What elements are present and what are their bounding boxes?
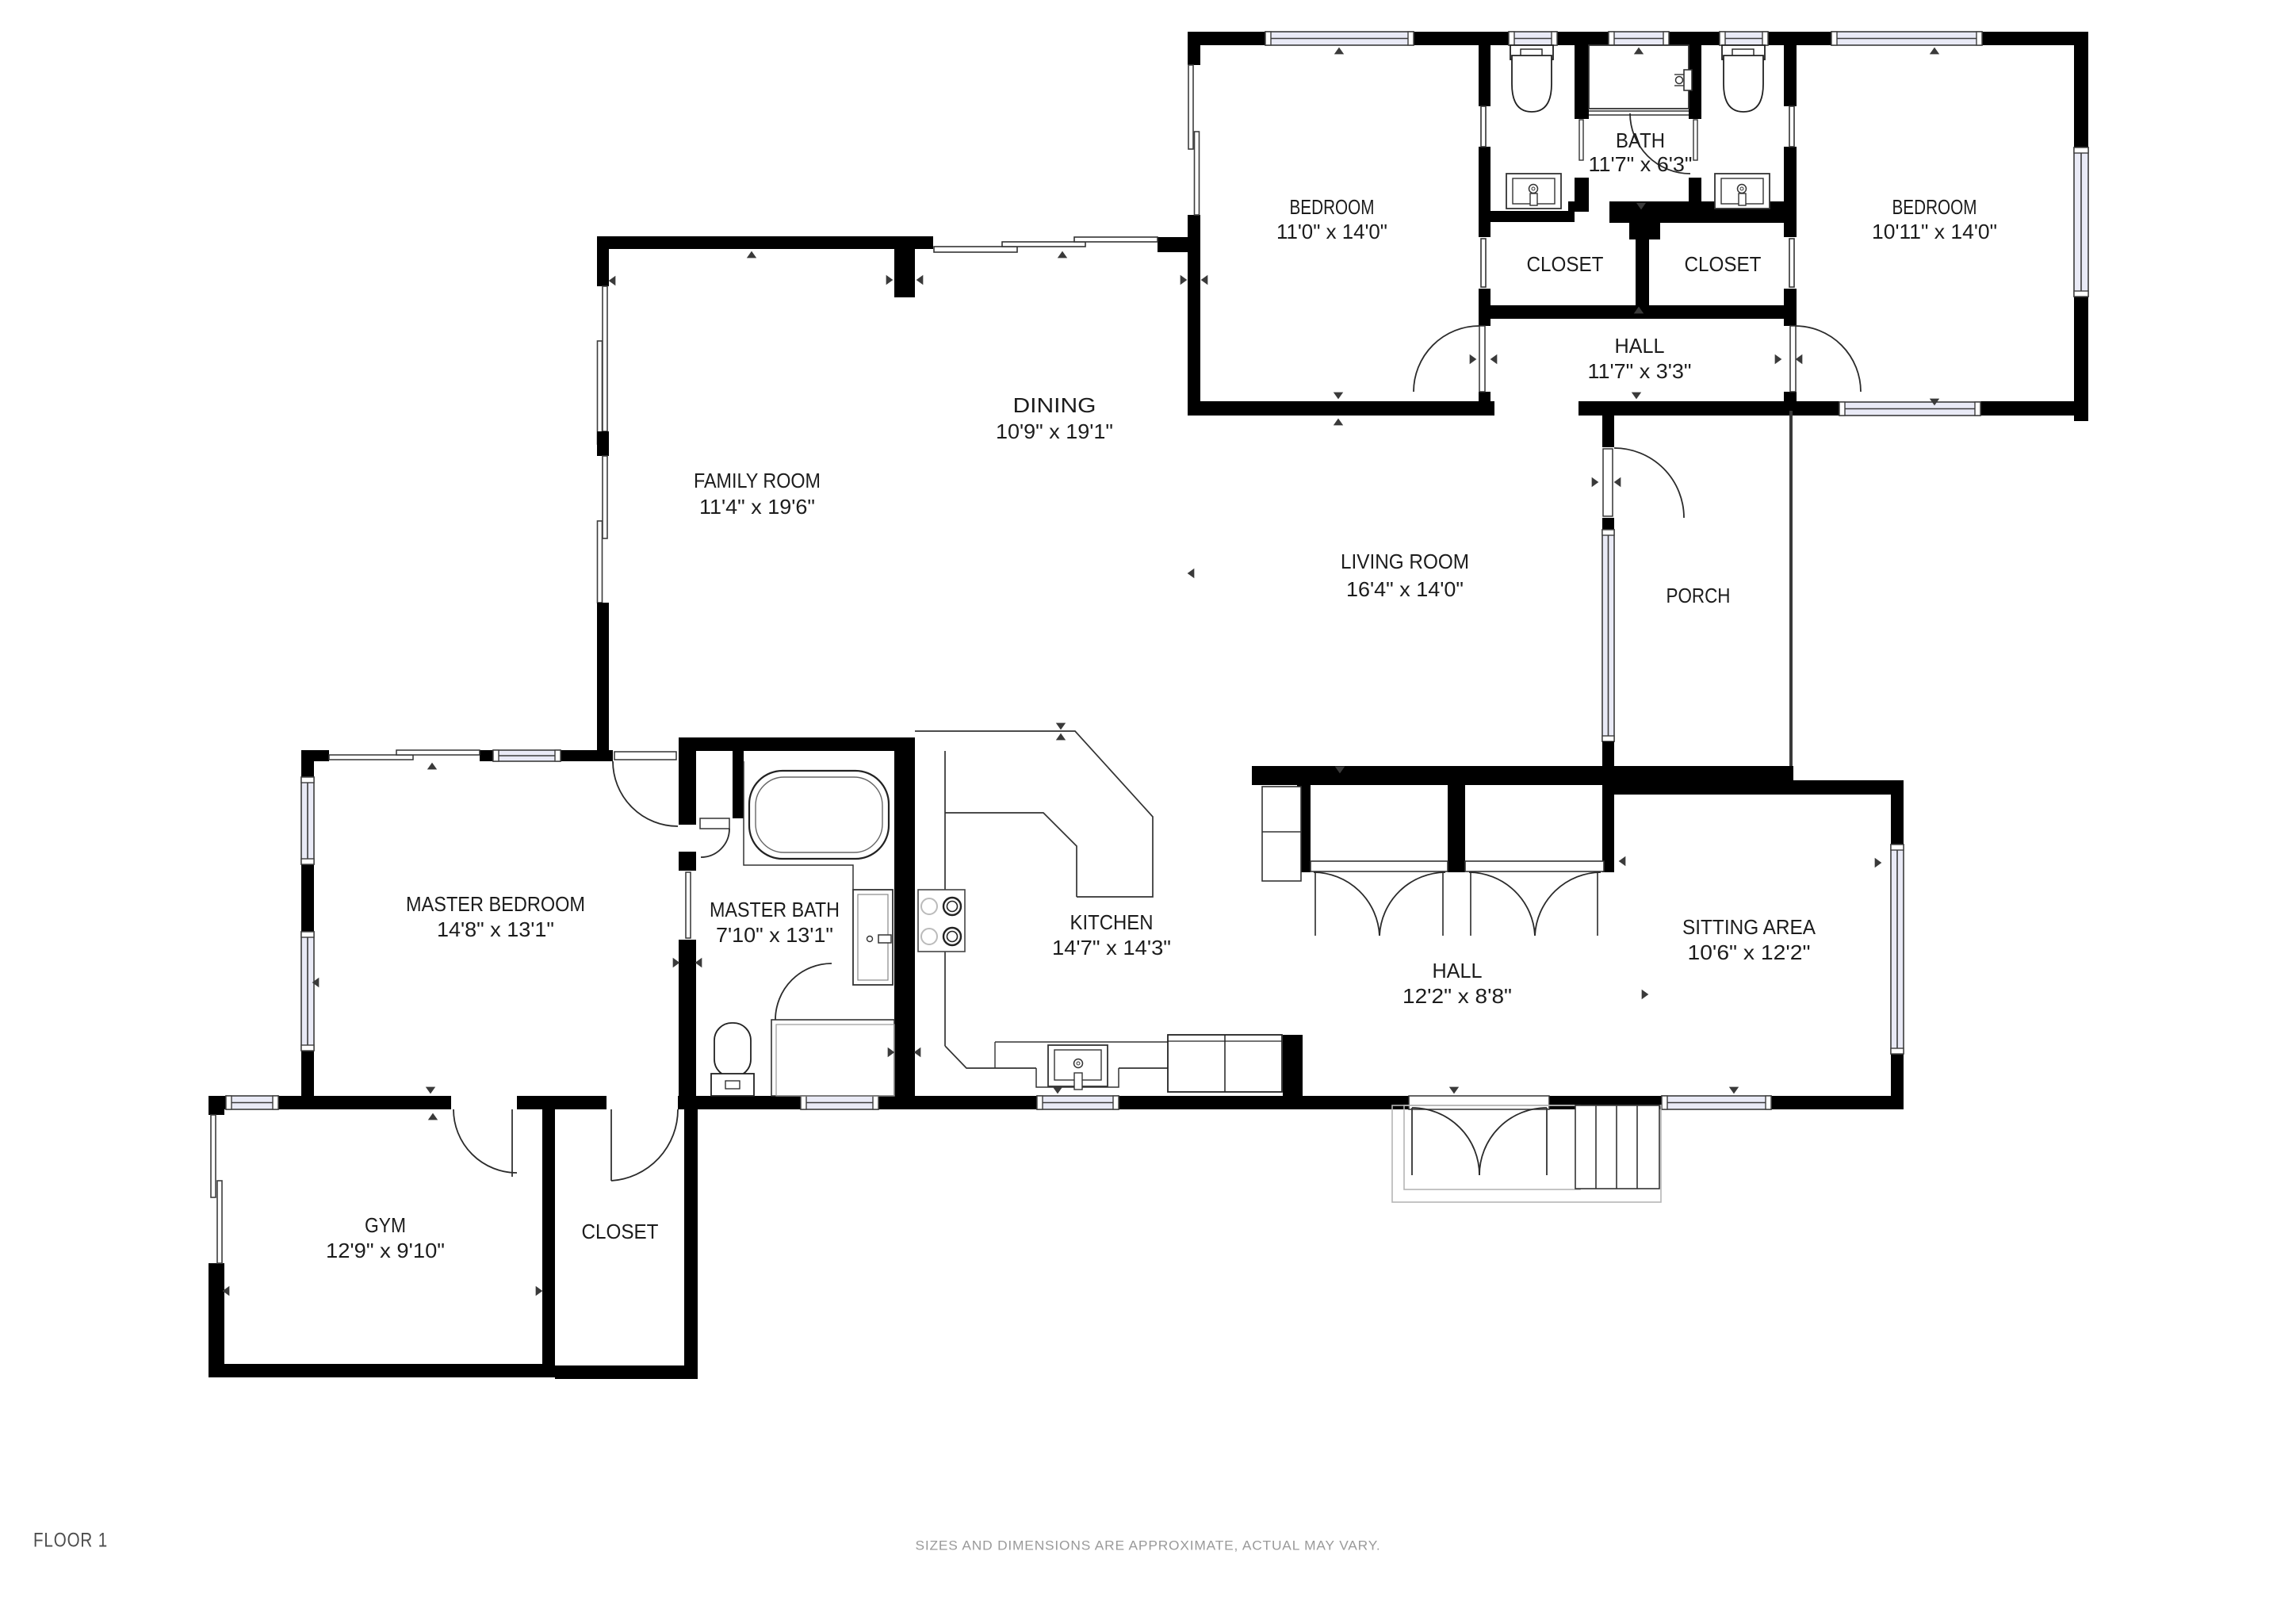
svg-text:MASTER BEDROOM: MASTER BEDROOM xyxy=(406,892,585,916)
svg-text:MASTER BATH: MASTER BATH xyxy=(710,898,840,921)
svg-text:GYM: GYM xyxy=(365,1213,406,1237)
svg-text:10'6" x 12'2": 10'6" x 12'2" xyxy=(1688,940,1811,964)
svg-text:HALL: HALL xyxy=(1615,334,1665,358)
svg-text:11'7" x 3'3": 11'7" x 3'3" xyxy=(1588,359,1692,383)
svg-text:FAMILY ROOM: FAMILY ROOM xyxy=(694,469,821,492)
svg-text:CLOSET: CLOSET xyxy=(1685,252,1762,276)
svg-text:DINING: DINING xyxy=(1013,393,1096,417)
svg-text:12'2" x 8'8": 12'2" x 8'8" xyxy=(1402,984,1512,1008)
svg-text:FLOOR 1: FLOOR 1 xyxy=(33,1530,108,1552)
svg-text:16'4" x 14'0": 16'4" x 14'0" xyxy=(1346,577,1464,601)
svg-text:PORCH: PORCH xyxy=(1667,584,1731,607)
svg-text:11'0" x 14'0": 11'0" x 14'0" xyxy=(1276,220,1387,243)
svg-text:CLOSET: CLOSET xyxy=(582,1220,659,1243)
svg-text:SIZES AND DIMENSIONS ARE APPRO: SIZES AND DIMENSIONS ARE APPROXIMATE, AC… xyxy=(916,1538,1381,1553)
svg-text:BEDROOM: BEDROOM xyxy=(1290,195,1375,219)
svg-text:14'7" x 14'3": 14'7" x 14'3" xyxy=(1052,936,1171,959)
svg-text:10'11" x 14'0": 10'11" x 14'0" xyxy=(1872,220,1997,243)
svg-text:SITTING AREA: SITTING AREA xyxy=(1682,915,1816,939)
svg-text:7'10" x 13'1": 7'10" x 13'1" xyxy=(716,923,833,947)
svg-text:KITCHEN: KITCHEN xyxy=(1070,910,1154,934)
svg-text:BATH: BATH xyxy=(1616,128,1665,152)
svg-text:HALL: HALL xyxy=(1433,959,1483,982)
svg-text:10'9" x 19'1": 10'9" x 19'1" xyxy=(996,419,1113,443)
svg-text:14'8" x 13'1": 14'8" x 13'1" xyxy=(437,917,554,941)
svg-text:BEDROOM: BEDROOM xyxy=(1892,195,1977,219)
svg-text:12'9" x 9'10": 12'9" x 9'10" xyxy=(326,1239,445,1262)
svg-text:LIVING ROOM: LIVING ROOM xyxy=(1341,550,1469,573)
svg-text:11'4" x 19'6": 11'4" x 19'6" xyxy=(699,495,815,519)
svg-text:11'7" x 6'3": 11'7" x 6'3" xyxy=(1589,152,1693,176)
svg-text:CLOSET: CLOSET xyxy=(1527,252,1604,276)
